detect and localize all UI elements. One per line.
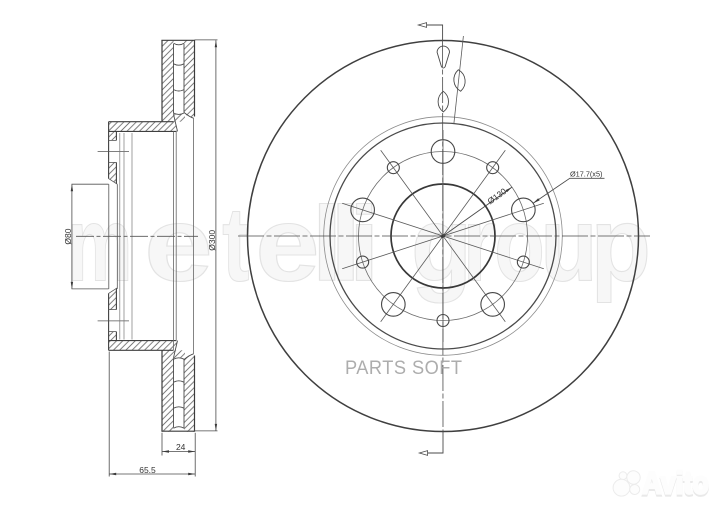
svg-text:65.5: 65.5 bbox=[139, 465, 156, 475]
svg-text:m: m bbox=[68, 186, 133, 304]
svg-text:Ø17.7(x5): Ø17.7(x5) bbox=[570, 170, 602, 179]
svg-text:24: 24 bbox=[176, 442, 186, 452]
svg-text:e: e bbox=[255, 186, 319, 304]
svg-text:Ø80: Ø80 bbox=[63, 228, 73, 244]
svg-text:o: o bbox=[494, 186, 545, 304]
svg-text:p: p bbox=[591, 184, 651, 303]
svg-text:Avito: Avito bbox=[642, 464, 709, 500]
svg-text:Ø300: Ø300 bbox=[207, 230, 217, 251]
svg-text:u: u bbox=[540, 185, 597, 303]
svg-text:t: t bbox=[222, 185, 249, 303]
svg-text:e: e bbox=[144, 186, 213, 304]
svg-text:PARTS SOFT: PARTS SOFT bbox=[345, 357, 463, 379]
